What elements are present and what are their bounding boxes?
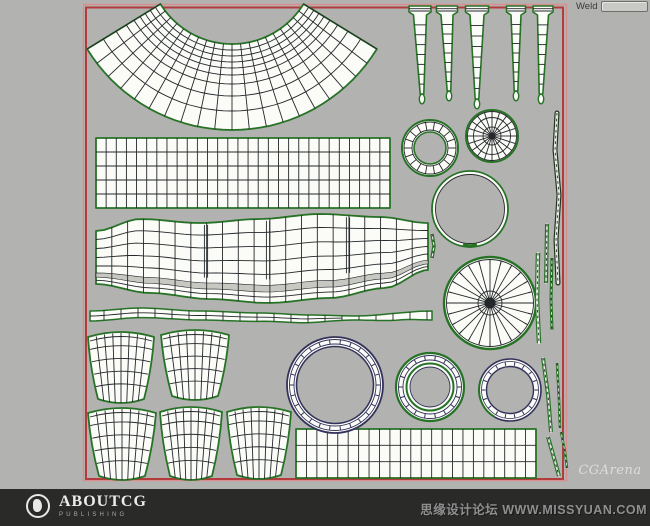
weld-label: Weld	[576, 1, 597, 12]
uv-shell-sliver-5[interactable]	[432, 234, 434, 258]
uv-shell-band-grid[interactable]	[96, 138, 390, 208]
uv-shell-waist-band[interactable]	[96, 214, 428, 303]
uv-shell-sliver-7[interactable]	[557, 363, 560, 428]
uv-shell-thin-ring[interactable]	[432, 171, 508, 247]
uv-shell-strap-2[interactable]	[437, 6, 458, 101]
uv-shell-strap-4[interactable]	[507, 6, 526, 101]
uv-shell-bottom-grid[interactable]	[296, 429, 536, 478]
uv-shell-cup-1[interactable]	[88, 332, 154, 403]
uv-shell-trim-strip[interactable]	[90, 308, 432, 323]
uv-shell-strap-5[interactable]	[533, 6, 553, 104]
uv-shell-strap-3[interactable]	[466, 6, 489, 109]
uv-shell-sliver-4[interactable]	[551, 258, 552, 330]
forum-watermark: 思缘设计论坛 WWW.MISSYUAN.COM	[420, 499, 647, 518]
uv-shell-cup-4[interactable]	[160, 407, 222, 480]
uv-shell-grommet-ring[interactable]	[402, 120, 458, 176]
cgarena-watermark: CGArena	[572, 463, 648, 478]
uv-shell-wheel-disc[interactable]	[444, 257, 536, 349]
uv-editor-viewport[interactable]	[0, 0, 650, 490]
uv-shell-sliver-6[interactable]	[543, 358, 551, 432]
weld-control: Weld	[576, 1, 648, 12]
uv-shell-cup-2[interactable]	[161, 330, 229, 400]
uv-shell-strap-1[interactable]	[409, 6, 431, 104]
uv-shell-cup-3[interactable]	[88, 408, 156, 480]
aboutcg-brand: ABOUTCG PUBLISHING	[26, 494, 147, 518]
uv-shell-double-ring[interactable]	[396, 353, 464, 421]
uv-shell-sliver-1[interactable]	[555, 113, 559, 283]
brand-subtitle: PUBLISHING	[59, 512, 147, 518]
aboutcg-logo-icon	[26, 494, 50, 518]
uv-shell-collar-ring[interactable]	[287, 337, 383, 433]
brand-name: ABOUTCG	[59, 494, 147, 510]
uv-shell-cap-disc[interactable]	[466, 110, 518, 162]
weld-threshold-field[interactable]	[601, 1, 648, 12]
footer-bar: ABOUTCG PUBLISHING 思缘设计论坛 WWW.MISSYUAN.C…	[0, 489, 650, 526]
uv-shell-sliver-8[interactable]	[548, 437, 559, 476]
uv-shell-sliver-3[interactable]	[537, 253, 539, 343]
uv-shell-small-ring[interactable]	[479, 359, 541, 421]
uv-shell-sliver-2[interactable]	[546, 224, 547, 283]
uv-shell-cup-5[interactable]	[227, 407, 291, 479]
uv-shell-collar[interactable]	[87, 4, 377, 130]
